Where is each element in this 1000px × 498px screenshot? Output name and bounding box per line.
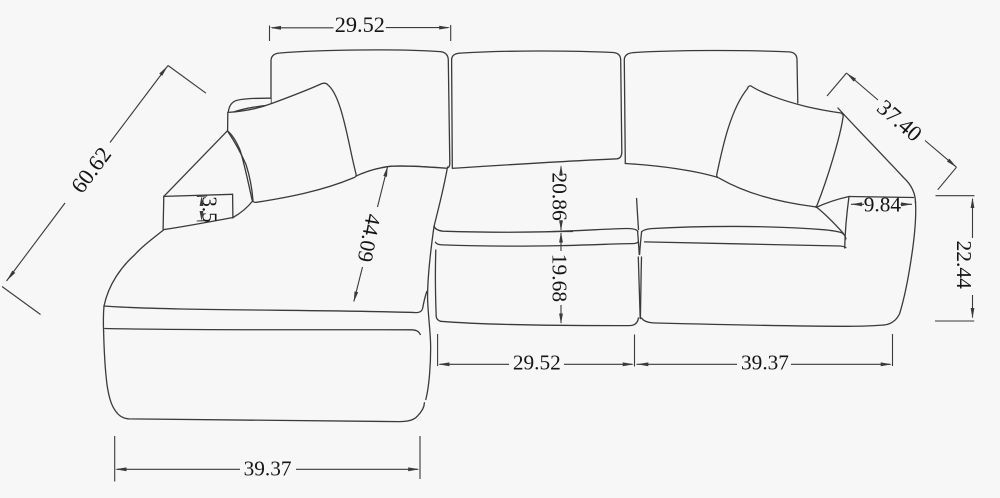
svg-text:3.5: 3.5 <box>198 196 222 222</box>
svg-text:29.52: 29.52 <box>335 12 385 37</box>
svg-text:9.84: 9.84 <box>864 193 902 217</box>
svg-text:39.37: 39.37 <box>244 457 292 481</box>
svg-text:19.68: 19.68 <box>548 254 572 302</box>
svg-text:29.52: 29.52 <box>513 351 561 375</box>
svg-text:20.86: 20.86 <box>548 172 572 221</box>
svg-text:22.44: 22.44 <box>952 241 976 290</box>
svg-text:39.37: 39.37 <box>741 351 789 375</box>
